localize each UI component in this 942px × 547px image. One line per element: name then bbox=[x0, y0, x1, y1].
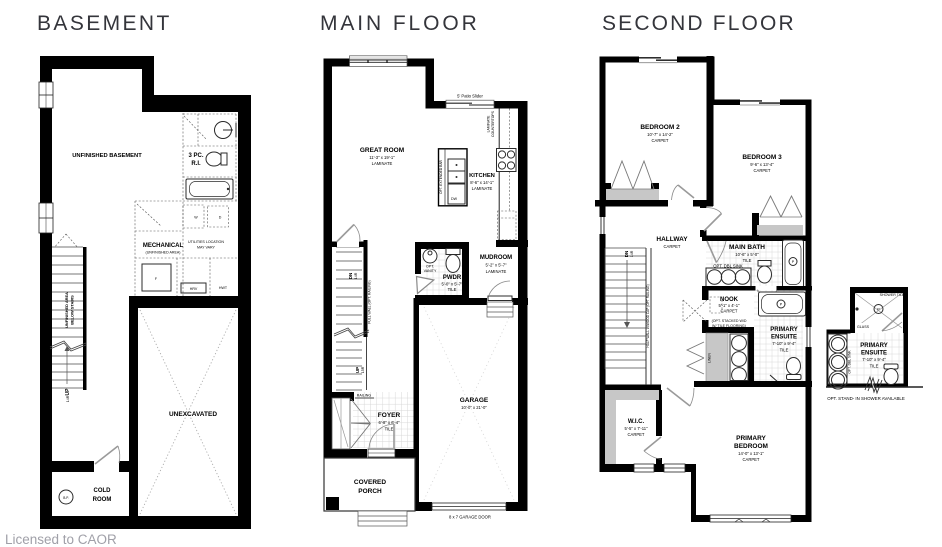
svg-text:(OPT. STACKED W/D: (OPT. STACKED W/D bbox=[712, 319, 747, 323]
svg-text:COLD: COLD bbox=[94, 488, 112, 494]
svg-text:UNEXCAVATED: UNEXCAVATED bbox=[169, 411, 217, 418]
svg-text:ENSUITE: ENSUITE bbox=[771, 335, 797, 341]
svg-text:W/ TILE FLOORING): W/ TILE FLOORING) bbox=[712, 324, 746, 328]
svg-text:SHOWER TILE: SHOWER TILE bbox=[880, 293, 905, 297]
svg-text:(UNFINISHED AREA): (UNFINISHED AREA) bbox=[146, 251, 181, 255]
svg-text:15R: 15R bbox=[361, 366, 365, 373]
svg-text:UNFINISHED BASEMENT: UNFINISHED BASEMENT bbox=[72, 153, 142, 159]
svg-text:7'-10" x 9'-4": 7'-10" x 9'-4" bbox=[772, 341, 796, 346]
svg-text:MAIN BATH: MAIN BATH bbox=[729, 244, 765, 251]
svg-text:PRIMARY: PRIMARY bbox=[770, 327, 797, 333]
svg-text:HALF WALL W/WOOD CAP (OPT RAIL: HALF WALL W/WOOD CAP (OPT RAILING) bbox=[646, 284, 650, 347]
svg-text:D: D bbox=[219, 216, 222, 220]
svg-text:UP: UP bbox=[65, 388, 71, 396]
svg-text:14R: 14R bbox=[354, 272, 358, 279]
svg-text:CARPET: CARPET bbox=[743, 457, 760, 462]
svg-text:BEDROOM 2: BEDROOM 2 bbox=[640, 124, 680, 131]
svg-text:FULL WALL (OPT. RAILING): FULL WALL (OPT. RAILING) bbox=[368, 280, 372, 323]
svg-text:KITCHEN: KITCHEN bbox=[469, 173, 495, 179]
svg-text:8 x 7 GARAGE DOOR: 8 x 7 GARAGE DOOR bbox=[449, 515, 491, 520]
svg-text:UP: UP bbox=[355, 367, 360, 373]
svg-text:10'-0" x 21'-0": 10'-0" x 21'-0" bbox=[461, 405, 487, 410]
svg-text:OPT.: OPT. bbox=[426, 265, 434, 269]
svg-text:10'-7" x 14'-2": 10'-7" x 14'-2" bbox=[647, 132, 673, 137]
svg-text:R.I.: R.I. bbox=[191, 161, 201, 167]
svg-text:GLASS: GLASS bbox=[857, 325, 870, 329]
svg-text:BELOW STAIRS: BELOW STAIRS bbox=[70, 295, 75, 325]
svg-text:3 PC.: 3 PC. bbox=[188, 153, 203, 159]
svg-text:UTILITIES LOCATION: UTILITIES LOCATION bbox=[188, 240, 224, 244]
svg-text:MAY VARY: MAY VARY bbox=[197, 246, 216, 250]
svg-text:FOYER: FOYER bbox=[378, 412, 401, 419]
svg-text:W: W bbox=[194, 216, 198, 220]
svg-text:LAMINATE: LAMINATE bbox=[486, 269, 507, 274]
svg-text:BEDROOM: BEDROOM bbox=[734, 443, 768, 450]
svg-text:ENSUITE: ENSUITE bbox=[861, 351, 887, 357]
svg-text:9'-6" x 13'-4": 9'-6" x 13'-4" bbox=[750, 162, 774, 167]
svg-text:OPT. STAND- IN SHOWER AVAILABL: OPT. STAND- IN SHOWER AVAILABLE bbox=[827, 396, 905, 401]
svg-text:COVERED: COVERED bbox=[354, 479, 386, 486]
svg-text:LAMINATE: LAMINATE bbox=[472, 186, 493, 191]
svg-text:MAIN FLOOR: MAIN FLOOR bbox=[320, 12, 480, 35]
svg-text:5'-2" x 5'-7": 5'-2" x 5'-7" bbox=[485, 263, 507, 268]
svg-text:GARAGE: GARAGE bbox=[460, 397, 489, 404]
svg-text:PRIMARY: PRIMARY bbox=[736, 435, 766, 442]
svg-text:HALLWAY: HALLWAY bbox=[656, 236, 688, 243]
svg-text:DW: DW bbox=[451, 197, 458, 201]
svg-text:UNFINISHED AREA: UNFINISHED AREA bbox=[64, 292, 69, 328]
svg-text:CARPET: CARPET bbox=[721, 309, 738, 314]
svg-text:B.P.: B.P. bbox=[63, 496, 69, 500]
svg-text:BASEMENT: BASEMENT bbox=[37, 12, 172, 35]
svg-text:VANITY: VANITY bbox=[424, 269, 437, 273]
svg-text:OPT. DBL SINK: OPT. DBL SINK bbox=[749, 346, 753, 370]
svg-text:Licensed to CAOR: Licensed to CAOR bbox=[5, 532, 117, 547]
svg-text:GREAT ROOM: GREAT ROOM bbox=[360, 147, 404, 154]
svg-text:BEDROOM 3: BEDROOM 3 bbox=[742, 154, 782, 161]
svg-text:5'-0" x 5'-7": 5'-0" x 5'-7" bbox=[441, 282, 463, 287]
svg-text:CARPET: CARPET bbox=[754, 168, 771, 173]
svg-text:DN: DN bbox=[348, 273, 353, 280]
svg-text:LAMINATE: LAMINATE bbox=[487, 115, 491, 132]
svg-text:TILE: TILE bbox=[780, 348, 789, 353]
svg-text:7'-10" x 9'-4": 7'-10" x 9'-4" bbox=[862, 357, 886, 362]
svg-text:14'-0" x 13'-1": 14'-0" x 13'-1" bbox=[738, 451, 764, 456]
svg-text:W.I.C.: W.I.C. bbox=[628, 419, 645, 425]
svg-text:PRIMARY: PRIMARY bbox=[860, 343, 887, 349]
svg-text:HWT: HWT bbox=[219, 286, 228, 290]
svg-text:TILE: TILE bbox=[743, 258, 752, 263]
svg-text:PORCH: PORCH bbox=[358, 488, 382, 495]
svg-text:MECHANICAL: MECHANICAL bbox=[143, 243, 184, 249]
svg-text:TILE: TILE bbox=[448, 287, 457, 292]
svg-text:PWDR: PWDR bbox=[443, 275, 462, 281]
svg-text:5'-1" x 4'-1": 5'-1" x 4'-1" bbox=[718, 303, 740, 308]
svg-text:14R: 14R bbox=[66, 395, 70, 402]
svg-text:LINEN: LINEN bbox=[708, 353, 712, 363]
svg-text:8'-6" x 14'-1": 8'-6" x 14'-1" bbox=[470, 180, 494, 185]
svg-text:11'-3" x 19'-1": 11'-3" x 19'-1" bbox=[369, 155, 395, 160]
svg-text:OPT. DBL SINK: OPT. DBL SINK bbox=[848, 350, 852, 374]
svg-text:ROOM: ROOM bbox=[93, 497, 112, 503]
svg-text:HRV: HRV bbox=[190, 287, 198, 291]
svg-text:5'-5" x 7'-11": 5'-5" x 7'-11" bbox=[624, 426, 648, 431]
svg-text:14R: 14R bbox=[630, 250, 634, 257]
svg-text:SECOND FLOOR: SECOND FLOOR bbox=[602, 12, 796, 35]
svg-text:CARPET: CARPET bbox=[664, 244, 681, 249]
svg-text:10'-6" x 5'-0": 10'-6" x 5'-0" bbox=[735, 252, 759, 257]
svg-text:COUNTERTOPS: COUNTERTOPS bbox=[491, 110, 495, 137]
svg-text:5' Patio Slider: 5' Patio Slider bbox=[457, 94, 483, 99]
svg-text:TILE: TILE bbox=[870, 364, 879, 369]
svg-text:RAILING: RAILING bbox=[357, 394, 372, 398]
svg-text:DN: DN bbox=[624, 251, 629, 258]
svg-text:CARPET: CARPET bbox=[652, 138, 669, 143]
svg-text:CARPET: CARPET bbox=[628, 432, 645, 437]
svg-text:TILE: TILE bbox=[385, 427, 394, 432]
svg-text:OPT. EXTENDED BAR: OPT. EXTENDED BAR bbox=[439, 159, 443, 194]
svg-text:MUDROOM: MUDROOM bbox=[480, 255, 512, 261]
svg-text:LAMINATE: LAMINATE bbox=[372, 161, 393, 166]
